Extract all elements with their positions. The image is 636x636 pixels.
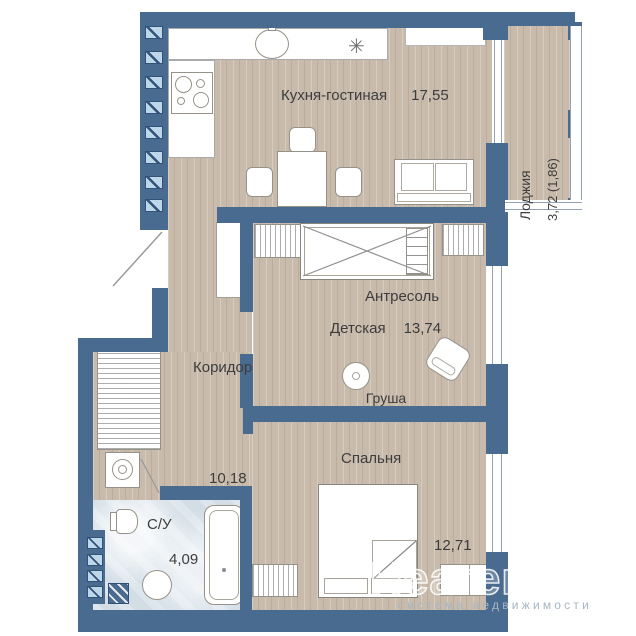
bathroom-area: 4,09 [169,551,198,569]
burner-small-1 [196,79,205,88]
loggia-door-glass-lines [494,40,502,143]
vent-square-12 [87,586,103,598]
wall-pillar-kitchen [483,12,508,40]
glass-door-kitchen-loggia [492,40,504,143]
dining-chair-top [289,127,316,153]
bathtub-inner [209,510,239,600]
window-bedroom-glass-lines [492,454,502,552]
loggia-name: Лоджия [516,80,534,220]
loggia-glazing-right [570,26,582,212]
vent-square-1 [145,26,163,39]
washbasin-icon [142,570,172,600]
wall-bathroom-top [160,486,252,500]
wall-kitchen-kids [217,207,508,223]
mezzanine-label: Антресоль [347,288,457,306]
dining-chair-left [246,167,273,197]
kids-room-name: Детская [330,320,386,338]
entrance-door-swing-line [113,232,162,286]
burner-large-1 [175,76,192,93]
kitchen-sink-icon [255,29,289,59]
bedroom-name: Спальня [341,450,401,468]
sofa [394,159,474,205]
dining-chair-right [335,167,362,197]
burner-large-2 [193,92,209,108]
wall-kids-left-a [240,222,253,312]
sofa-cushion-left [401,163,434,191]
loggia-area: 3,72 (1,86) [544,113,562,221]
vent-square-3 [145,76,163,89]
window-sill-shelf [405,26,486,46]
vent-square-11 [87,570,103,582]
kids-room-label-row: Детская 13,74 [330,320,441,338]
vent-square-2 [145,51,163,64]
dining-table [277,151,327,207]
sofa-back [397,193,471,202]
kids-room-area: 13,74 [404,320,442,338]
vent-square-5 [145,126,163,139]
watermark-tagline: система недвижимости [398,598,592,612]
wall-left-upper [140,12,168,230]
kitchen-living-area: 17,55 [411,87,449,105]
wall-bathroom-right [240,498,252,612]
vent-square-8 [145,199,163,212]
vent-square-6 [145,151,163,164]
wall-bottom [78,610,508,632]
wall-stub-bedroom-door [243,406,253,434]
window-bedroom [486,454,508,552]
burner-small-2 [177,97,185,105]
hob-star-icon: ✳ [348,34,365,59]
sofa-cushion-right [435,163,467,191]
wall-kids-bedroom [243,406,508,422]
washing-machine-drum-center [118,465,127,474]
bathtub-drain [222,568,226,572]
wall-top [140,12,508,28]
bedroom-wardrobe [252,564,298,597]
vent-square-9 [87,537,103,549]
punching-bag-center [352,372,360,380]
bathroom-name: С/У [147,516,172,534]
pear-label: Груша [358,389,414,407]
kids-wardrobe-right [442,224,484,256]
vent-square-7 [145,176,163,189]
corridor-name: Коридор [193,359,252,377]
punching-bag-icon [342,362,370,390]
corridor-area: 10,18 [209,470,247,488]
window-kids-room [486,266,508,364]
kids-wardrobe-left [254,224,301,258]
toilet-icon [116,509,138,534]
bed-pillow-left [324,578,368,594]
loft-bed-ladder-icon [406,228,428,275]
floor-plan-canvas: ✳ [0,0,636,636]
vent-square-4 [145,101,163,114]
vent-square-10 [87,554,103,566]
kitchen-living-label-row: Кухня-гостиная 17,55 [281,87,449,105]
kitchen-living-name: Кухня-гостиная [281,87,387,105]
bathroom-duct-icon [108,583,129,604]
window-kids-glass-lines [492,266,502,364]
bathtub [204,505,244,605]
corridor-wardrobe [97,350,161,450]
